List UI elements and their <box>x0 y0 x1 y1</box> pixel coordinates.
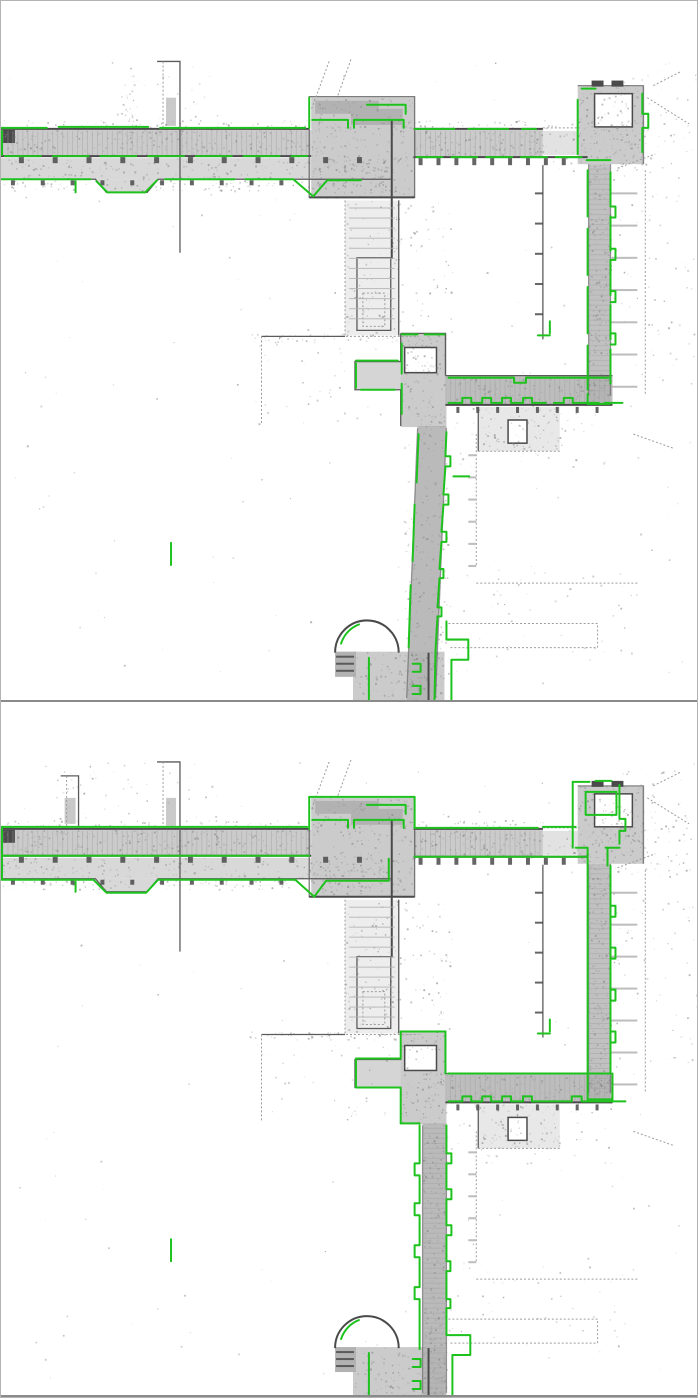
map-canvas-top <box>1 1 697 700</box>
point-cloud-map-panel-top <box>1 1 697 702</box>
slam-map-figure <box>0 0 698 1398</box>
point-cloud-map-panel-bottom <box>1 702 697 1397</box>
map-canvas-bottom <box>1 702 697 1395</box>
